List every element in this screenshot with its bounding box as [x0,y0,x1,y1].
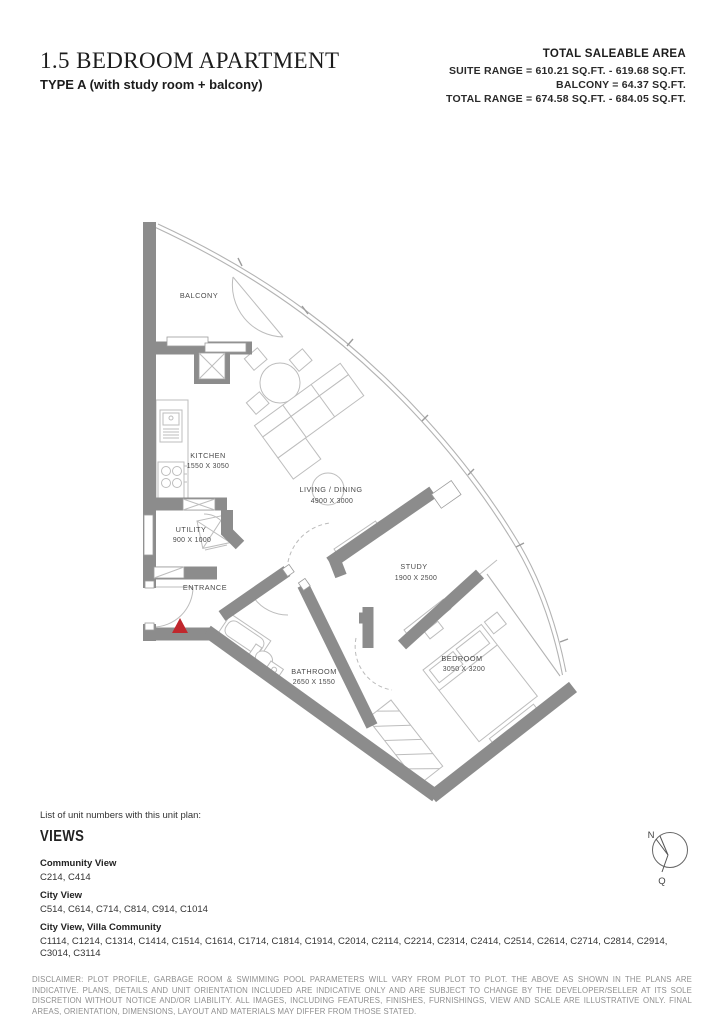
views-heading: VIEWS [40,828,84,846]
compass-q-label: Q [658,876,665,887]
room-dims-utility: 900 X 1000 [173,537,211,544]
unit-list-intro: List of unit numbers with this unit plan… [40,810,201,821]
view-group-city-villa: City View, Villa Community C1114, C1214,… [40,922,680,960]
room-label-bedroom: BEDROOM [441,654,482,663]
view-group-city: City View C514, C614, C714, C814, C914, … [40,890,208,916]
room-dims-bedroom: 3050 X 3200 [443,666,485,673]
room-dims-living: 4900 X 3000 [311,498,353,505]
view-group-units: C1114, C1214, C1314, C1414, C1514, C1614… [40,936,680,960]
entrance-marker [172,618,188,633]
kitchen-fixtures [156,400,188,498]
room-label-bathroom: BATHROOM [291,667,337,676]
room-label-balcony: BALCONY [180,291,218,300]
compass-north-label: N [648,830,655,841]
room-label-entrance: ENTRANCE [183,583,227,592]
view-group-label: City View [40,890,208,902]
room-dims-kitchen: 1550 X 3050 [187,463,229,470]
room-label-kitchen: KITCHEN [190,451,226,460]
room-label-study: STUDY [400,562,427,571]
view-group-label: City View, Villa Community [40,922,680,934]
view-group-units: C214, C414 [40,872,116,884]
bed [423,612,562,753]
room-label-living: LIVING / DINING [299,485,362,494]
room-dims-bathroom: 2650 X 1550 [293,679,335,686]
disclaimer-text: DISCLAIMER: PLOT PROFILE, GARBAGE ROOM &… [32,975,692,1017]
room-label-utility: UTILITY [176,525,207,534]
floorplan-page: 1.5 BEDROOM APARTMENT TYPE A (with study… [0,0,724,1024]
view-group-community: Community View C214, C414 [40,858,116,884]
compass: N Q [648,830,688,887]
room-dims-study: 1900 X 2500 [395,575,437,582]
view-group-units: C514, C614, C714, C814, C914, C1014 [40,904,208,916]
view-group-label: Community View [40,858,116,870]
